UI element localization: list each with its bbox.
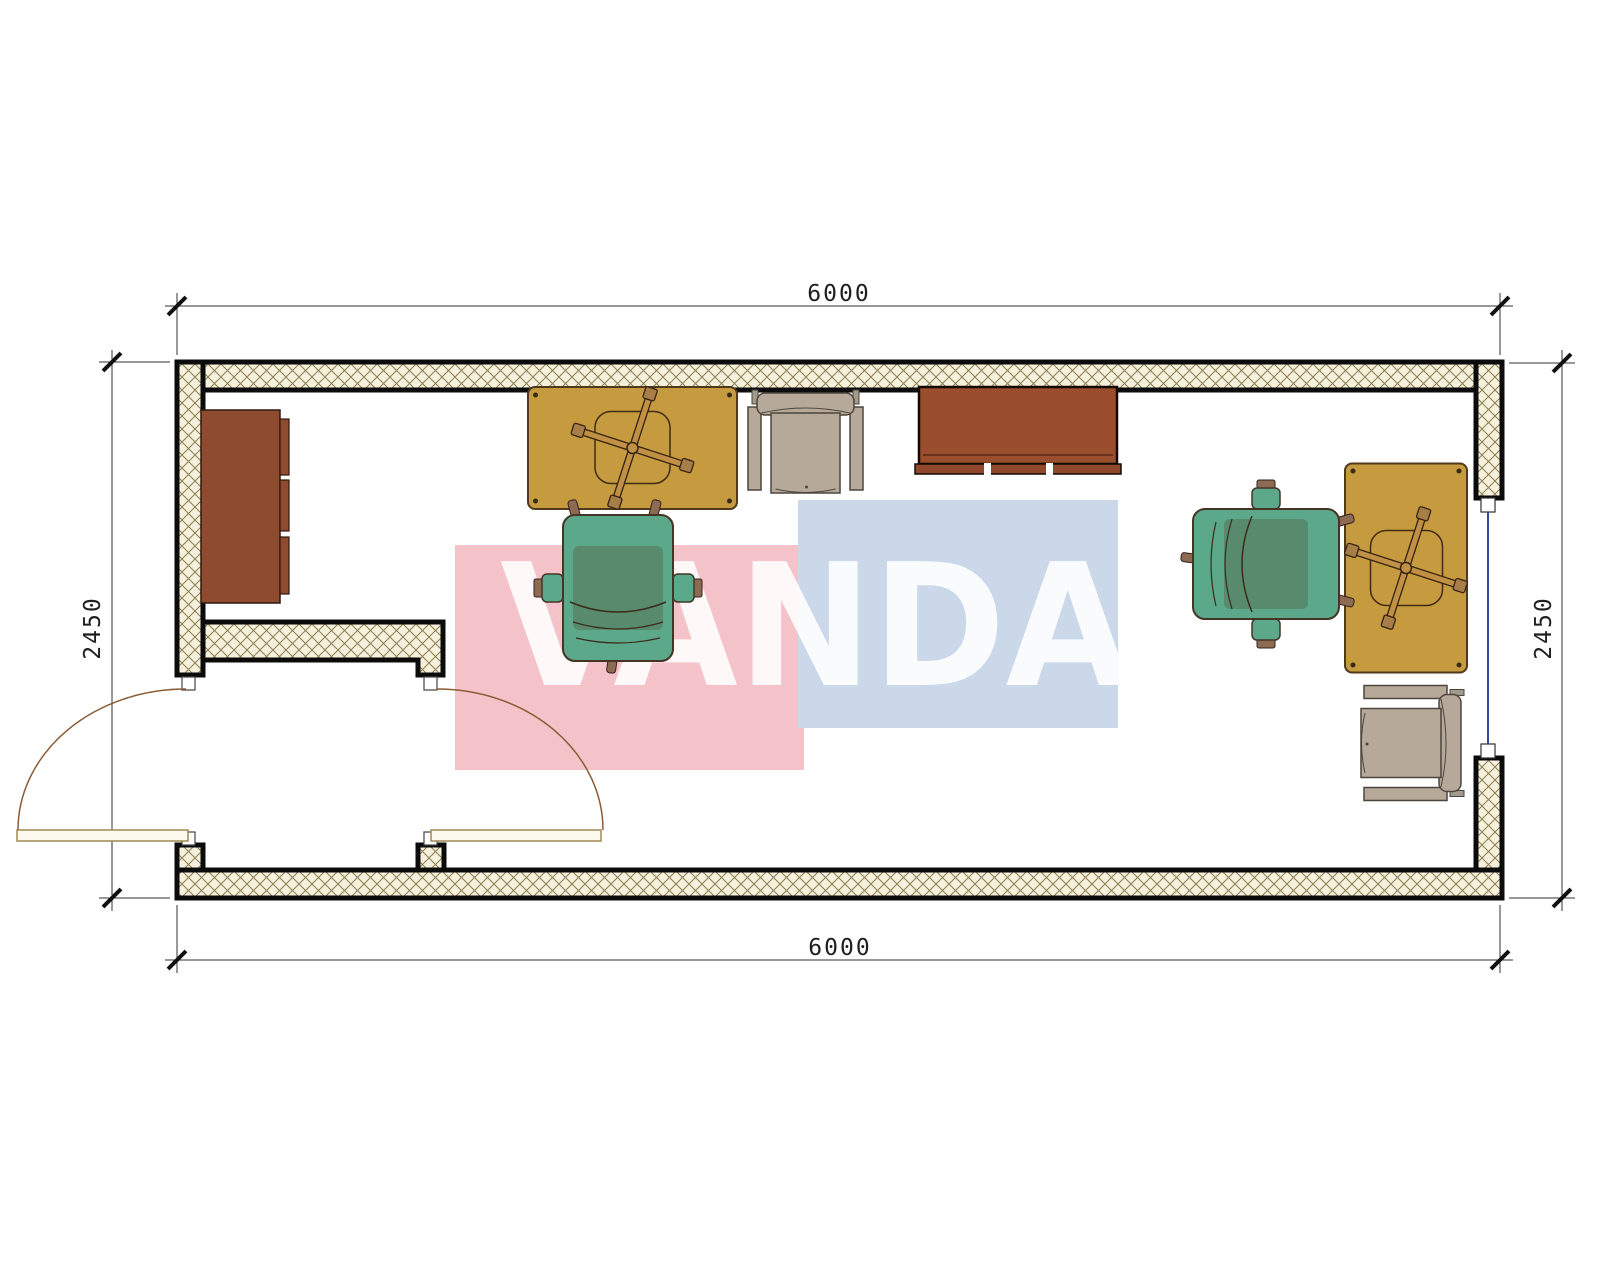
left-wall (177, 362, 203, 675)
bottom-wall (177, 870, 1502, 898)
office-chair-right-icon (1180, 480, 1354, 648)
desk-top-center-icon (528, 369, 737, 528)
dim-label-top: 6000 (807, 281, 870, 307)
visitor-armchair-bottom-right-icon (1361, 686, 1464, 801)
credenza-desk-icon (915, 387, 1121, 475)
dim-label-left: 2450 (80, 596, 106, 659)
door-frame (424, 677, 437, 690)
door-frame (182, 677, 195, 690)
window-frame-top (1481, 498, 1495, 512)
top-wall (177, 362, 1502, 390)
desk-right-icon (1327, 464, 1486, 673)
visitor-armchair-top-icon (748, 390, 863, 493)
window (1481, 498, 1495, 758)
door-jamb-stub-right (418, 845, 444, 870)
door-leaf-left (17, 830, 188, 841)
dim-label-bottom: 6000 (808, 935, 871, 961)
dim-label-right: 2450 (1531, 596, 1557, 659)
door-leaf-right (431, 830, 601, 841)
floor-plan-canvas: VANDA 6000 6000 2450 2450 (0, 0, 1600, 1280)
door-swing-arc-left (18, 689, 186, 830)
right-wall-upper (1476, 362, 1502, 498)
window-frame-bottom (1481, 744, 1495, 758)
door-frames (182, 677, 437, 845)
watermark: VANDA (455, 500, 1130, 770)
sideboard-cabinet-icon (201, 410, 289, 603)
door-jamb-stub-left (177, 845, 203, 870)
vestibule-partition-wall (203, 622, 443, 675)
